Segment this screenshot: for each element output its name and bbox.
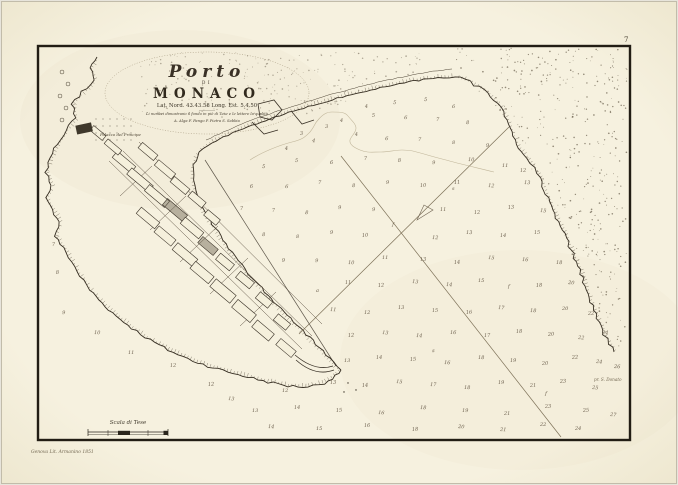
stipple-dot: [247, 76, 248, 77]
stipple-dot: [532, 53, 533, 54]
stipple-dot: [500, 49, 501, 50]
sounding-depth: 24: [601, 330, 609, 336]
stipple-dot: [376, 85, 377, 86]
stipple-dot: [518, 137, 519, 138]
offshore-rock: [355, 389, 356, 390]
stipple-dot: [270, 98, 271, 99]
stipple-dot: [606, 205, 607, 206]
sounding-depth: 11: [128, 350, 134, 356]
stipple-dot: [626, 78, 627, 79]
stipple-dot: [614, 249, 615, 250]
stipple-dot: [262, 91, 263, 92]
stipple-dot: [229, 59, 230, 60]
stipple-dot: [292, 73, 293, 74]
stipple-dot: [334, 101, 335, 102]
stipple-dot: [555, 59, 557, 61]
stipple-dot: [337, 104, 339, 106]
stipple-dot: [319, 108, 320, 109]
stipple-dot: [580, 210, 581, 211]
stipple-dot: [614, 206, 615, 207]
sounding-depth: 4: [339, 118, 343, 124]
stipple-dot: [622, 207, 623, 208]
stipple-dot: [603, 194, 604, 195]
stipple-dot: [600, 180, 601, 181]
sounding-depth: 22: [539, 422, 546, 428]
sounding-depth: 8: [352, 183, 355, 189]
stipple-dot: [610, 112, 611, 113]
stipple-dot: [247, 69, 248, 70]
stipple-dot: [527, 157, 528, 158]
garden-dot: [110, 126, 111, 127]
stipple-dot: [606, 198, 607, 199]
stipple-dot: [336, 101, 337, 102]
sounding-depth: 14: [500, 233, 506, 239]
stipple-dot: [511, 106, 512, 107]
stipple-dot: [612, 81, 613, 82]
stipple-dot: [538, 94, 540, 96]
stipple-dot: [288, 90, 289, 91]
garden-dot: [110, 119, 111, 120]
stipple-dot: [558, 205, 559, 206]
stipple-dot: [527, 127, 528, 128]
stipple-dot: [586, 96, 587, 97]
sounding-depth: 11: [440, 207, 446, 213]
stipple-dot: [354, 75, 355, 76]
stipple-dot: [520, 62, 521, 63]
stipple-dot: [604, 139, 605, 140]
stipple-dot: [303, 82, 304, 83]
stipple-dot: [550, 72, 551, 73]
sounding-depth: 14: [268, 424, 275, 430]
stipple-dot: [507, 54, 508, 55]
sounding-depth: 14: [294, 405, 301, 411]
stipple-dot: [556, 137, 557, 138]
stipple-dot: [563, 135, 564, 136]
stipple-dot: [614, 244, 616, 246]
sounding-depth: 15: [488, 255, 495, 262]
stipple-dot: [524, 63, 525, 64]
stipple-dot: [338, 79, 340, 81]
sounding-depth: 16: [522, 257, 529, 263]
stipple-dot: [344, 68, 345, 69]
stipple-dot: [543, 117, 544, 118]
stipple-dot: [601, 292, 602, 293]
stipple-dot: [576, 114, 577, 115]
stipple-dot: [599, 303, 600, 304]
stipple-dot: [610, 152, 611, 153]
stipple-dot: [270, 93, 271, 94]
stipple-dot: [499, 102, 500, 103]
stipple-dot: [258, 81, 259, 82]
stipple-dot: [330, 103, 331, 104]
stipple-dot: [599, 270, 600, 271]
stipple-dot: [618, 85, 619, 86]
stipple-dot: [600, 259, 601, 260]
stipple-dot: [568, 49, 569, 50]
sounding-depth: 16: [450, 330, 457, 336]
stipple-dot: [574, 148, 576, 150]
stipple-dot: [543, 127, 544, 128]
stipple-dot: [572, 71, 573, 72]
stipple-dot: [586, 58, 587, 59]
stipple-dot: [604, 175, 605, 176]
stipple-dot: [625, 261, 627, 263]
stipple-dot: [620, 256, 621, 257]
stipple-dot: [274, 90, 275, 91]
stipple-dot: [174, 55, 175, 56]
sounding-depth: 21: [499, 427, 507, 433]
stipple-dot: [537, 127, 538, 128]
stipple-dot: [581, 222, 582, 223]
stipple-dot: [374, 71, 375, 72]
stipple-dot: [539, 63, 540, 64]
stipple-dot: [589, 143, 590, 144]
stipple-dot: [595, 215, 596, 216]
stipple-dot: [140, 66, 141, 67]
stipple-dot: [310, 79, 311, 80]
stipple-dot: [502, 87, 503, 88]
stipple-dot: [570, 200, 572, 202]
stipple-dot: [461, 48, 462, 49]
sounding-depth: 15: [540, 208, 547, 214]
stipple-dot: [617, 181, 618, 182]
stipple-dot: [257, 82, 259, 84]
stipple-dot: [608, 214, 609, 215]
stipple-dot: [599, 310, 601, 312]
stipple-dot: [537, 171, 538, 172]
sounding-depth: 20: [561, 306, 569, 312]
stipple-dot: [362, 58, 364, 60]
sounding-depth: 13: [344, 358, 350, 364]
stipple-dot: [612, 76, 614, 78]
lithographer-imprint: Genova Lit. Armanino 1851: [31, 449, 94, 455]
sounding-depth: 24: [595, 359, 603, 365]
garden-dot: [96, 119, 97, 120]
stipple-dot: [591, 56, 592, 57]
stipple-dot: [160, 63, 162, 65]
stipple-dot: [619, 193, 621, 195]
stipple-dot: [555, 68, 556, 69]
sounding-depth: 17: [430, 382, 437, 388]
stipple-dot: [185, 56, 186, 57]
stipple-dot: [605, 244, 606, 245]
stipple-dot: [171, 84, 172, 85]
sounding-depth: 8: [466, 120, 469, 126]
sounding-depth: 15: [316, 426, 322, 432]
stipple-dot: [608, 317, 609, 318]
stipple-dot: [553, 95, 554, 96]
stipple-dot: [373, 59, 375, 61]
stipple-dot: [538, 57, 540, 59]
page-number: 7: [624, 36, 628, 44]
stipple-dot: [552, 145, 554, 147]
stipple-dot: [590, 230, 591, 231]
stipple-dot: [482, 71, 484, 73]
stipple-dot: [546, 80, 547, 81]
stipple-dot: [272, 87, 273, 88]
stipple-dot: [528, 54, 529, 55]
sounding-depth: 5: [424, 97, 427, 103]
stipple-dot: [564, 204, 565, 205]
stipple-dot: [359, 53, 360, 54]
stipple-dot: [617, 336, 618, 337]
stipple-dot: [611, 136, 612, 137]
stipple-dot: [514, 116, 515, 117]
stipple-dot: [602, 103, 604, 105]
stipple-dot: [258, 63, 259, 64]
stipple-dot: [170, 55, 171, 56]
garden-dot: [110, 140, 111, 141]
stipple-dot: [587, 182, 589, 184]
stipple-dot: [617, 248, 618, 249]
stipple-dot: [578, 101, 579, 102]
garden-dot: [131, 126, 132, 127]
stipple-dot: [544, 61, 546, 63]
stipple-dot: [619, 160, 620, 161]
stipple-dot: [145, 93, 146, 94]
stipple-dot: [598, 307, 599, 308]
stipple-dot: [604, 110, 606, 112]
stipple-dot: [572, 113, 573, 114]
stipple-dot: [549, 51, 551, 53]
stipple-dot: [542, 178, 543, 179]
sounding-depth: 19: [462, 408, 469, 414]
stipple-dot: [570, 218, 571, 219]
sounding-depth: 19: [510, 358, 517, 364]
stipple-dot: [572, 87, 573, 88]
garden-dot: [124, 119, 125, 120]
sounding-depth: 20: [567, 280, 576, 287]
stipple-dot: [558, 190, 560, 192]
stipple-dot: [586, 184, 587, 185]
stipple-dot: [296, 68, 297, 69]
stipple-dot: [605, 294, 607, 296]
stipple-dot: [610, 67, 611, 68]
palace-label: Palazzo del Principe: [99, 132, 141, 137]
stipple-dot: [565, 207, 566, 208]
stipple-dot: [599, 172, 601, 174]
stipple-dot: [606, 92, 608, 94]
stipple-dot: [504, 106, 505, 107]
stipple-dot: [503, 114, 504, 115]
stipple-dot: [306, 113, 307, 114]
stipple-dot: [617, 176, 618, 177]
stipple-dot: [506, 50, 507, 51]
stipple-dot: [141, 76, 142, 77]
stipple-dot: [281, 70, 282, 71]
stipple-dot: [609, 79, 611, 81]
sounding-depth: 12: [474, 210, 481, 216]
stipple-dot: [294, 70, 295, 71]
stipple-dot: [473, 60, 474, 61]
stipple-dot: [389, 83, 390, 84]
stipple-dot: [521, 73, 522, 74]
stipple-dot: [301, 100, 302, 101]
stipple-dot: [293, 60, 294, 61]
stipple-dot: [623, 105, 624, 106]
stipple-dot: [407, 74, 409, 76]
stipple-dot: [620, 105, 621, 106]
stipple-dot: [586, 135, 587, 136]
stipple-dot: [617, 339, 618, 340]
stipple-dot: [405, 55, 407, 57]
stipple-dot: [519, 93, 520, 94]
stipple-dot: [607, 243, 608, 244]
stipple-dot: [149, 64, 150, 65]
stipple-dot: [616, 291, 617, 292]
stipple-dot: [597, 141, 598, 142]
sounding-depth: 20: [541, 361, 549, 367]
stipple-dot: [558, 54, 559, 55]
stipple-dot: [457, 48, 458, 49]
stipple-dot: [509, 56, 510, 57]
stipple-dot: [559, 100, 560, 101]
stipple-dot: [382, 61, 383, 62]
stipple-dot: [618, 345, 619, 346]
stipple-dot: [597, 50, 598, 51]
stipple-dot: [603, 251, 605, 253]
stipple-dot: [335, 103, 336, 104]
sounding-depth: 11: [502, 163, 508, 169]
stipple-dot: [523, 93, 525, 95]
sounding-depth: 13: [398, 305, 404, 311]
sounding-depth: 25: [582, 407, 590, 414]
stipple-dot: [619, 226, 620, 227]
stipple-dot: [321, 54, 322, 55]
stipple-dot: [147, 89, 148, 90]
stipple-dot: [592, 185, 593, 186]
stipple-dot: [594, 225, 595, 226]
stipple-dot: [606, 322, 607, 323]
stipple-dot: [335, 85, 336, 86]
sounding-depth: 22: [571, 354, 579, 361]
sounding-depth: 18: [530, 308, 537, 314]
stipple-dot: [619, 298, 620, 299]
stipple-dot: [596, 254, 597, 255]
stipple-dot: [594, 85, 595, 86]
stipple-dot: [274, 84, 275, 85]
stipple-dot: [576, 248, 577, 249]
garden-dot: [124, 140, 125, 141]
scale-label: Scala di Tese: [110, 420, 147, 426]
stipple-dot: [575, 51, 576, 52]
sounding-depth: 8: [398, 158, 402, 164]
stipple-dot: [520, 79, 521, 80]
stipple-dot: [542, 58, 543, 59]
stipple-dot: [611, 198, 612, 199]
stipple-dot: [614, 274, 615, 275]
stipple-dot: [557, 98, 558, 99]
stipple-dot: [571, 150, 572, 151]
stipple-dot: [593, 168, 594, 169]
stipple-dot: [600, 223, 601, 224]
chart-title-di: DI: [202, 80, 212, 85]
stipple-dot: [263, 100, 265, 102]
sounding-depth: 14: [376, 355, 383, 361]
sounding-depth: a: [316, 288, 319, 294]
stipple-dot: [282, 88, 284, 90]
stipple-dot: [532, 169, 533, 170]
stipple-dot: [565, 83, 566, 84]
stipple-dot: [344, 71, 345, 72]
stipple-dot: [540, 99, 541, 100]
stipple-dot: [588, 254, 589, 255]
stipple-dot: [576, 214, 577, 215]
garden-dot: [117, 119, 118, 120]
stipple-dot: [607, 104, 609, 106]
stipple-dot: [540, 123, 541, 124]
stipple-dot: [609, 276, 610, 277]
stipple-dot: [235, 60, 236, 61]
sounding-depth: 13: [412, 279, 419, 285]
stipple-dot: [304, 100, 306, 102]
stipple-dot: [524, 86, 526, 88]
sounding-depth: 18: [478, 355, 484, 361]
stipple-dot: [349, 75, 350, 76]
stipple-dot: [235, 52, 236, 53]
stipple-dot: [604, 254, 605, 255]
stipple-dot: [479, 91, 480, 92]
stipple-dot: [595, 49, 597, 51]
stipple-dot: [327, 84, 328, 85]
stipple-dot: [579, 211, 580, 212]
stipple-dot: [599, 202, 601, 204]
stipple-dot: [613, 61, 614, 62]
sounding-depth: 16: [444, 360, 451, 366]
stipple-dot: [416, 64, 417, 65]
stipple-dot: [269, 103, 270, 104]
stipple-dot: [268, 74, 269, 75]
stipple-dot: [537, 67, 538, 68]
sounding-depth: 15: [336, 408, 343, 414]
sounding-depth: 5: [372, 113, 376, 119]
stipple-dot: [511, 48, 512, 49]
sounding-depth: 15: [410, 357, 417, 363]
sounding-depth: 4: [284, 146, 289, 152]
stipple-dot: [594, 264, 595, 265]
stipple-dot: [551, 65, 552, 66]
sounding-depth: 12: [432, 235, 439, 241]
stipple-dot: [569, 149, 570, 150]
stipple-dot: [308, 70, 310, 72]
stipple-dot: [596, 76, 597, 77]
stipple-dot: [317, 69, 318, 70]
stipple-dot: [576, 144, 578, 146]
stipple-dot: [578, 227, 579, 228]
stipple-dot: [557, 184, 558, 185]
stipple-dot: [626, 69, 627, 70]
stipple-dot: [604, 83, 605, 84]
stipple-dot: [539, 119, 540, 120]
stipple-dot: [573, 116, 574, 117]
garden-dot: [96, 126, 97, 127]
sounding-depth: 20: [457, 424, 466, 431]
stipple-dot: [575, 100, 576, 101]
stipple-dot: [563, 80, 564, 81]
sounding-depth: 12: [364, 310, 370, 316]
stipple-dot: [502, 67, 503, 68]
stipple-dot: [521, 126, 522, 127]
sounding-depth: 10: [94, 330, 101, 336]
stipple-dot: [415, 56, 416, 57]
stipple-dot: [598, 239, 599, 240]
stipple-dot: [617, 80, 618, 81]
sounding-depth: s: [452, 186, 455, 192]
sounding-depth: 23: [559, 378, 567, 385]
stipple-dot: [252, 66, 253, 67]
sounding-depth: 15: [478, 278, 484, 284]
stipple-dot: [525, 143, 526, 144]
